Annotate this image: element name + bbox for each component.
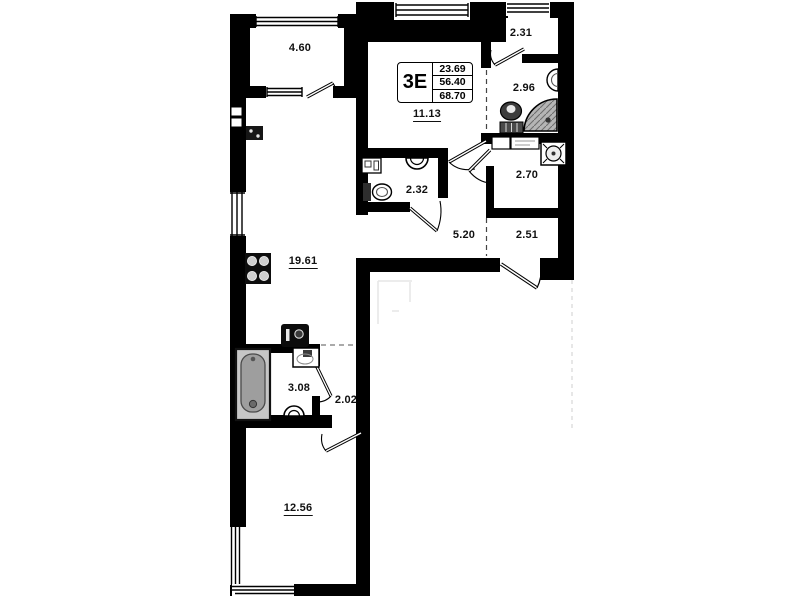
toilet-bathroom-icon [284, 406, 304, 416]
title-block: 3Е 23.69 56.40 68.70 [397, 62, 473, 103]
room-label-shower-room: 2.96 [513, 82, 535, 94]
heater-box-icon [511, 137, 539, 149]
living-area-value: 23.69 [433, 63, 472, 75]
apartment-type-label: 3Е [398, 63, 433, 102]
room-label-entry: 2.51 [516, 229, 538, 241]
door-wardrobe [491, 49, 525, 65]
door-balcony [307, 83, 337, 98]
room-label-hall: 2.02 [335, 394, 357, 406]
window-kitchen [229, 192, 246, 236]
apartment-area-value: 56.40 [433, 75, 472, 88]
stove-icon [245, 253, 271, 284]
door-bedroom-lower [322, 433, 362, 451]
water-heater-icon [281, 324, 309, 347]
washing-machine-icon [541, 142, 566, 165]
room-label-wc: 2.32 [406, 184, 428, 196]
window-bedroom-upper [394, 2, 470, 20]
room-label-hallway: 5.20 [453, 229, 475, 241]
room-label-laundry: 2.70 [516, 169, 538, 181]
floor-plan: 3Е 23.69 56.40 68.70 4.60 11.13 2.31 2.9… [0, 0, 799, 600]
bathtub-icon [236, 349, 270, 420]
window-wardrobe [506, 2, 550, 16]
total-area-value: 68.70 [433, 89, 472, 102]
room-label-kitchen-living: 19.61 [289, 255, 318, 269]
door-entrance [501, 264, 541, 288]
wall-unit-icon [246, 126, 263, 140]
room-label-bathroom: 3.08 [288, 382, 310, 394]
room-label-bedroom-upper: 11.13 [413, 108, 441, 122]
shower-tray-icon [524, 99, 557, 131]
window-kitchen-balcony [266, 86, 303, 98]
watermark-ghost [378, 281, 412, 324]
room-label-wardrobe: 2.31 [510, 27, 532, 39]
fixtures [231, 69, 566, 420]
washbasin-icon [293, 348, 319, 367]
door-wc [410, 201, 441, 231]
window-balcony [256, 16, 338, 27]
sink-wc-icon [406, 158, 428, 169]
room-label-balcony: 4.60 [289, 42, 311, 54]
room-label-bedroom-lower: 12.56 [284, 502, 313, 516]
windows [228, 2, 550, 596]
window-bedroom-lower-corner [228, 527, 294, 596]
door-bedroom-upper [449, 141, 486, 170]
toilet-shower-room-icon [500, 102, 523, 133]
wall-sink-icon [547, 69, 558, 91]
